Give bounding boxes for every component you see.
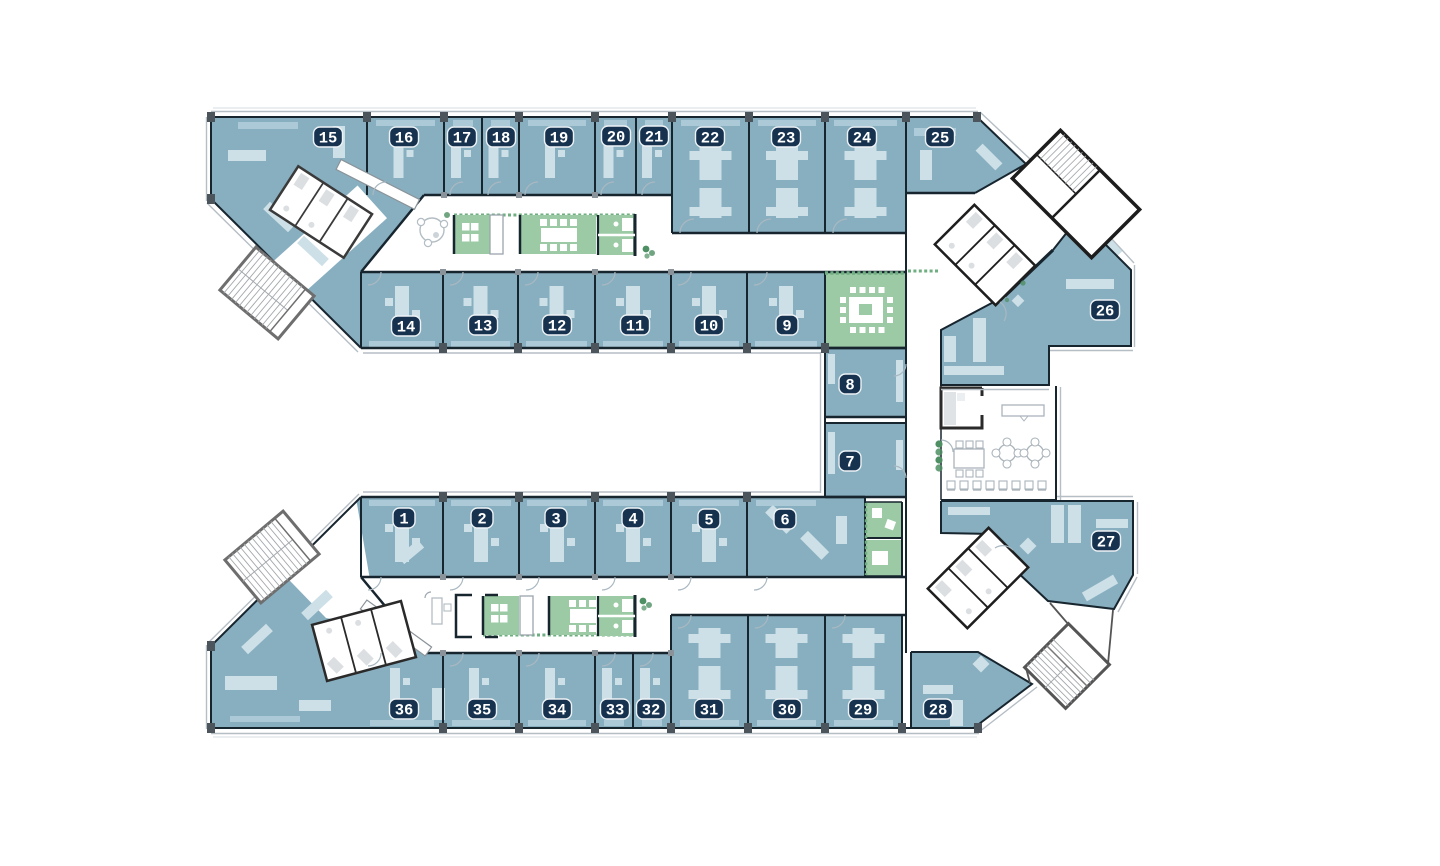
svg-text:19: 19: [550, 130, 569, 148]
svg-text:25: 25: [931, 130, 950, 148]
svg-text:36: 36: [395, 702, 414, 720]
svg-text:8: 8: [845, 377, 854, 395]
svg-text:6: 6: [780, 512, 789, 530]
svg-text:5: 5: [704, 512, 713, 530]
svg-text:29: 29: [854, 702, 873, 720]
svg-text:17: 17: [453, 130, 472, 148]
svg-text:4: 4: [628, 511, 637, 529]
svg-text:15: 15: [319, 130, 338, 148]
svg-text:13: 13: [474, 318, 493, 336]
svg-text:18: 18: [492, 130, 511, 148]
svg-text:23: 23: [777, 130, 796, 148]
svg-text:26: 26: [1096, 303, 1115, 321]
svg-text:33: 33: [606, 702, 625, 720]
svg-text:9: 9: [782, 318, 791, 336]
svg-text:10: 10: [700, 318, 719, 336]
svg-text:3: 3: [551, 511, 560, 529]
svg-text:14: 14: [397, 319, 416, 337]
svg-text:1: 1: [399, 511, 408, 529]
svg-text:22: 22: [701, 130, 720, 148]
svg-text:34: 34: [548, 702, 567, 720]
svg-text:31: 31: [700, 702, 719, 720]
svg-text:28: 28: [929, 702, 948, 720]
svg-text:11: 11: [626, 318, 645, 336]
svg-text:35: 35: [473, 702, 492, 720]
svg-text:27: 27: [1097, 534, 1116, 552]
svg-text:32: 32: [642, 702, 661, 720]
svg-text:21: 21: [645, 129, 664, 147]
svg-text:12: 12: [548, 318, 567, 336]
svg-text:16: 16: [395, 130, 414, 148]
svg-text:30: 30: [778, 702, 797, 720]
svg-text:2: 2: [477, 511, 486, 529]
svg-text:24: 24: [853, 130, 872, 148]
svg-text:7: 7: [845, 454, 854, 472]
svg-text:20: 20: [607, 129, 626, 147]
